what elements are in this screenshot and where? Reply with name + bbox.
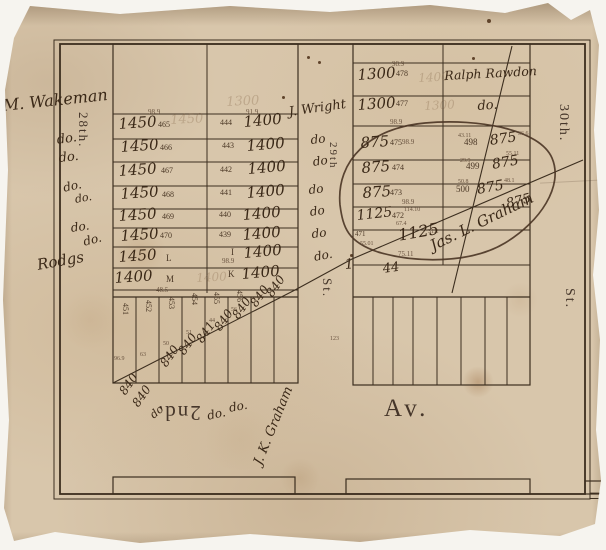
dimension: 36.6: [518, 131, 529, 137]
ditto-mark: do.: [56, 131, 78, 147]
dimension: 98.9: [402, 199, 414, 206]
lot-number: 466: [160, 144, 172, 152]
survey-linework: [0, 0, 606, 550]
lot-price: 1400: [243, 243, 282, 261]
lot-number: 473: [390, 189, 402, 197]
ditto-mark: do: [309, 204, 325, 218]
dimension: 55.01: [360, 241, 374, 247]
lot-number: 472: [392, 212, 404, 220]
lot-letter: K: [228, 270, 235, 279]
lot-price: 1450: [120, 184, 159, 202]
lot-number: 453: [167, 297, 175, 309]
hand-mark: 1: [344, 257, 354, 272]
lot-number: 477: [396, 100, 408, 108]
lot-letter: M: [166, 275, 174, 284]
lot-number: 469: [162, 213, 174, 221]
lot-number: 444: [220, 119, 232, 127]
lot-letter: I: [231, 248, 234, 257]
dimension: 123: [330, 336, 339, 342]
lot-price: 1400: [114, 268, 153, 286]
lot-price: 1300: [357, 65, 396, 83]
lot-number: 451: [121, 303, 129, 315]
lot-number: 474: [392, 164, 404, 172]
lot-price: 1400: [243, 112, 282, 130]
dimension: 98.9: [222, 258, 234, 265]
ditto-mark: do.: [228, 399, 248, 414]
lot-number: 454: [190, 293, 198, 305]
lot-price: 875: [362, 184, 392, 201]
lot-number: 465: [158, 121, 170, 129]
dimension: 96.9: [114, 356, 125, 362]
lot-number: 441: [220, 189, 232, 197]
lot-number: 478: [396, 70, 408, 78]
dimension: 48.1: [504, 178, 515, 184]
ditto-mark: do: [311, 226, 327, 239]
lot-price: 1450: [118, 161, 157, 179]
street-label-30th: 30th.: [556, 104, 570, 142]
street-label-28th: 28th.: [77, 112, 90, 148]
lot-number: 440: [219, 211, 231, 219]
lot-number: 442: [220, 166, 232, 174]
lot-price: 1300: [357, 95, 396, 113]
lot-number: 471: [355, 231, 366, 238]
scanned-map-page: 28th. 29th St. 30th. St. 2nd. Av. M. Wak…: [0, 0, 606, 550]
lot-price: 1400: [246, 136, 285, 154]
lot-price: 1125: [356, 205, 393, 223]
dimension: 98.9: [402, 139, 414, 146]
lot-price: 1450: [120, 137, 159, 155]
erased-price: 1300: [424, 98, 455, 112]
lot-price: 1450: [120, 226, 159, 244]
ditto-mark: do: [310, 132, 326, 145]
ditto-mark: do: [312, 154, 328, 168]
dimension: 75.11: [398, 251, 414, 258]
erased-price: 1300: [226, 94, 260, 109]
lot-price: 1400: [247, 159, 286, 177]
lot-number: 443: [222, 142, 234, 150]
paper-sheet: 28th. 29th St. 30th. St. 2nd. Av. M. Wak…: [0, 0, 606, 550]
erased-price: 1450: [170, 112, 204, 127]
ditto-mark: do.: [74, 191, 93, 205]
lot-price: 1450: [118, 114, 157, 132]
dimension: 63: [140, 352, 146, 358]
ditto-mark: do: [308, 182, 324, 195]
lot-price: 875: [361, 159, 391, 176]
lot-number: 498: [464, 138, 478, 147]
lot-number: 452: [144, 300, 152, 312]
ditto-mark: do.: [313, 248, 333, 263]
street-label-30th-st: St.: [562, 288, 576, 309]
lot-price: 1450: [118, 247, 157, 265]
ditto-mark: do.: [58, 150, 79, 165]
erased-price: 1400: [196, 270, 227, 284]
lot-price: 1400: [242, 205, 281, 223]
lot-number: 475: [390, 139, 402, 147]
lot-number: 439: [219, 231, 231, 239]
street-label-29th-st: St.: [321, 278, 334, 298]
avenue-label-av: Av.: [384, 396, 429, 421]
dimension: 114.10: [404, 207, 420, 213]
lot-price: 875: [360, 134, 390, 151]
lot-number: 468: [162, 191, 174, 199]
dimension: 48.5: [156, 287, 168, 294]
lot-letter: L: [166, 254, 172, 263]
lot-price: 875: [489, 130, 517, 148]
lot-price: 1450: [118, 206, 157, 224]
lot-number: 467: [161, 167, 173, 175]
hand-mark: 44: [382, 261, 400, 276]
lot-number: 470: [160, 232, 172, 240]
ditto-mark: do.: [206, 406, 227, 422]
dimension: 98.9: [390, 119, 402, 126]
lot-number: 455: [212, 292, 220, 304]
street-label-29th: 29th: [327, 142, 338, 170]
ditto-mark: do.: [70, 219, 90, 233]
ditto-mark: do.: [477, 99, 498, 113]
lot-price: 1400: [246, 183, 285, 201]
lot-number: 499: [466, 162, 480, 171]
lot-number: 500: [456, 185, 470, 194]
